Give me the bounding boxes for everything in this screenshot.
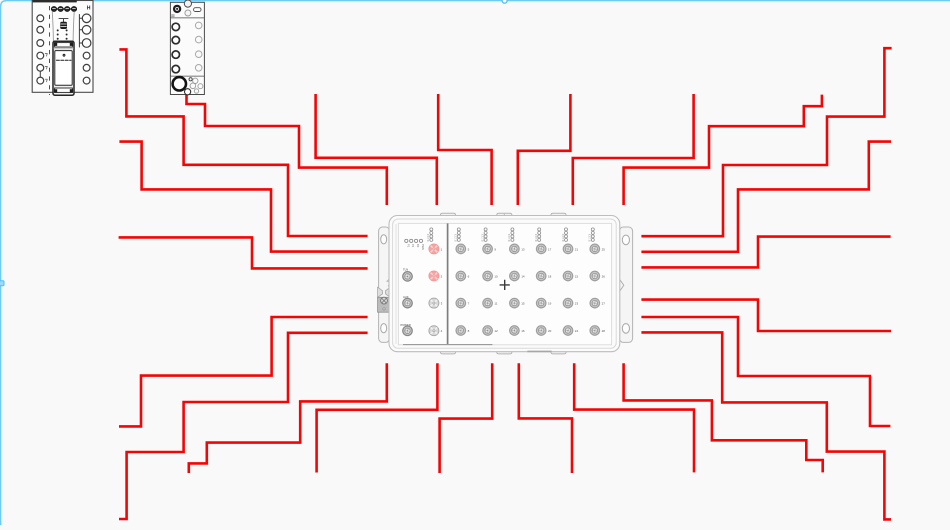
svg-text:10: 10 bbox=[494, 275, 498, 279]
svg-text:18: 18 bbox=[548, 275, 552, 279]
svg-text:21: 21 bbox=[575, 247, 579, 251]
svg-text:15: 15 bbox=[521, 302, 525, 306]
svg-text:20: 20 bbox=[548, 329, 552, 333]
svg-text:TLN: TLN bbox=[403, 268, 408, 272]
svg-text:22: 22 bbox=[575, 275, 579, 279]
svg-text:0 1 2 3: 0 1 2 3 bbox=[508, 234, 511, 242]
svg-text:13: 13 bbox=[521, 247, 525, 251]
svg-text:24: 24 bbox=[575, 329, 579, 333]
svg-text:14: 14 bbox=[521, 275, 525, 279]
svg-text:0 1 2 3: 0 1 2 3 bbox=[589, 234, 592, 242]
svg-text:23: 23 bbox=[575, 302, 579, 306]
svg-text:25: 25 bbox=[602, 247, 606, 251]
svg-text:P2: P2 bbox=[411, 244, 415, 248]
svg-text:BF: BF bbox=[416, 244, 420, 248]
svg-text:17: 17 bbox=[548, 247, 552, 251]
svg-text:27: 27 bbox=[602, 302, 606, 306]
svg-text:PWR: PWR bbox=[421, 244, 425, 250]
svg-text:P1: P1 bbox=[406, 244, 410, 248]
svg-text:0 1 2 3: 0 1 2 3 bbox=[535, 234, 538, 242]
svg-text:12: 12 bbox=[494, 329, 498, 333]
svg-text:0 1 2 3: 0 1 2 3 bbox=[427, 234, 430, 242]
svg-text:11: 11 bbox=[494, 302, 497, 306]
svg-text:0 1 2 3: 0 1 2 3 bbox=[481, 234, 484, 242]
svg-text:19: 19 bbox=[548, 302, 552, 306]
svg-text:26: 26 bbox=[602, 275, 606, 279]
svg-text:0 1 2 3: 0 1 2 3 bbox=[562, 234, 565, 242]
svg-text:H: H bbox=[87, 6, 91, 12]
svg-text:16: 16 bbox=[521, 329, 525, 333]
svg-text:0 1 2 3: 0 1 2 3 bbox=[455, 234, 458, 242]
svg-text:28: 28 bbox=[602, 329, 606, 333]
